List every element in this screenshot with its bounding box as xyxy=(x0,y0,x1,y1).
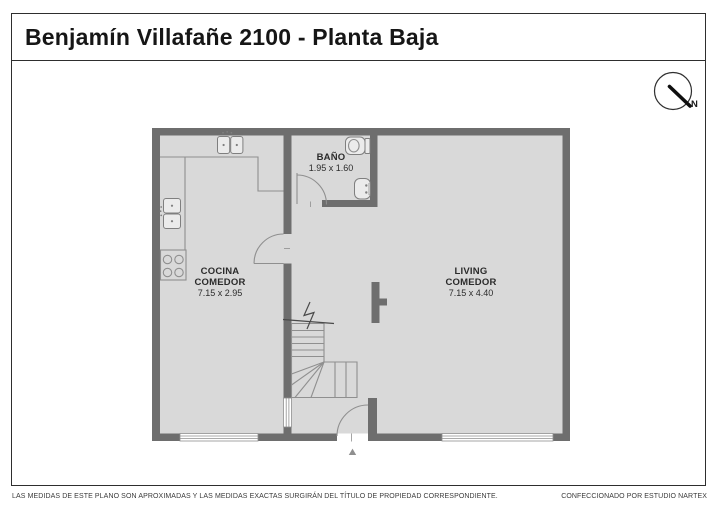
footer-disclaimer: LAS MEDIDAS DE ESTE PLANO SON APROXIMADA… xyxy=(12,493,498,500)
floor-plan-drawing xyxy=(0,0,720,509)
living-label: LIVING COMEDOR 7.15 x 4.40 xyxy=(445,266,496,299)
entrance-marker-icon xyxy=(349,449,356,455)
bathroom-label: BAÑO 1.95 x 1.60 xyxy=(309,152,354,174)
kitchen-label: COCINA COMEDOR 7.15 x 2.95 xyxy=(194,266,245,299)
window-bottom-right xyxy=(442,434,553,442)
window-under-stairs xyxy=(284,398,292,427)
footer-credit: CONFECCIONADO POR ESTUDIO NARTEX xyxy=(561,493,707,500)
north-compass-icon xyxy=(655,73,692,110)
floor-plan-page: Benjamín Villafañe 2100 - Planta Baja xyxy=(0,0,720,509)
bathroom-sink-icon xyxy=(355,179,371,200)
north-label: N xyxy=(691,99,698,110)
footer: LAS MEDIDAS DE ESTE PLANO SON APROXIMADA… xyxy=(12,493,707,500)
window-bottom-left xyxy=(180,434,258,442)
